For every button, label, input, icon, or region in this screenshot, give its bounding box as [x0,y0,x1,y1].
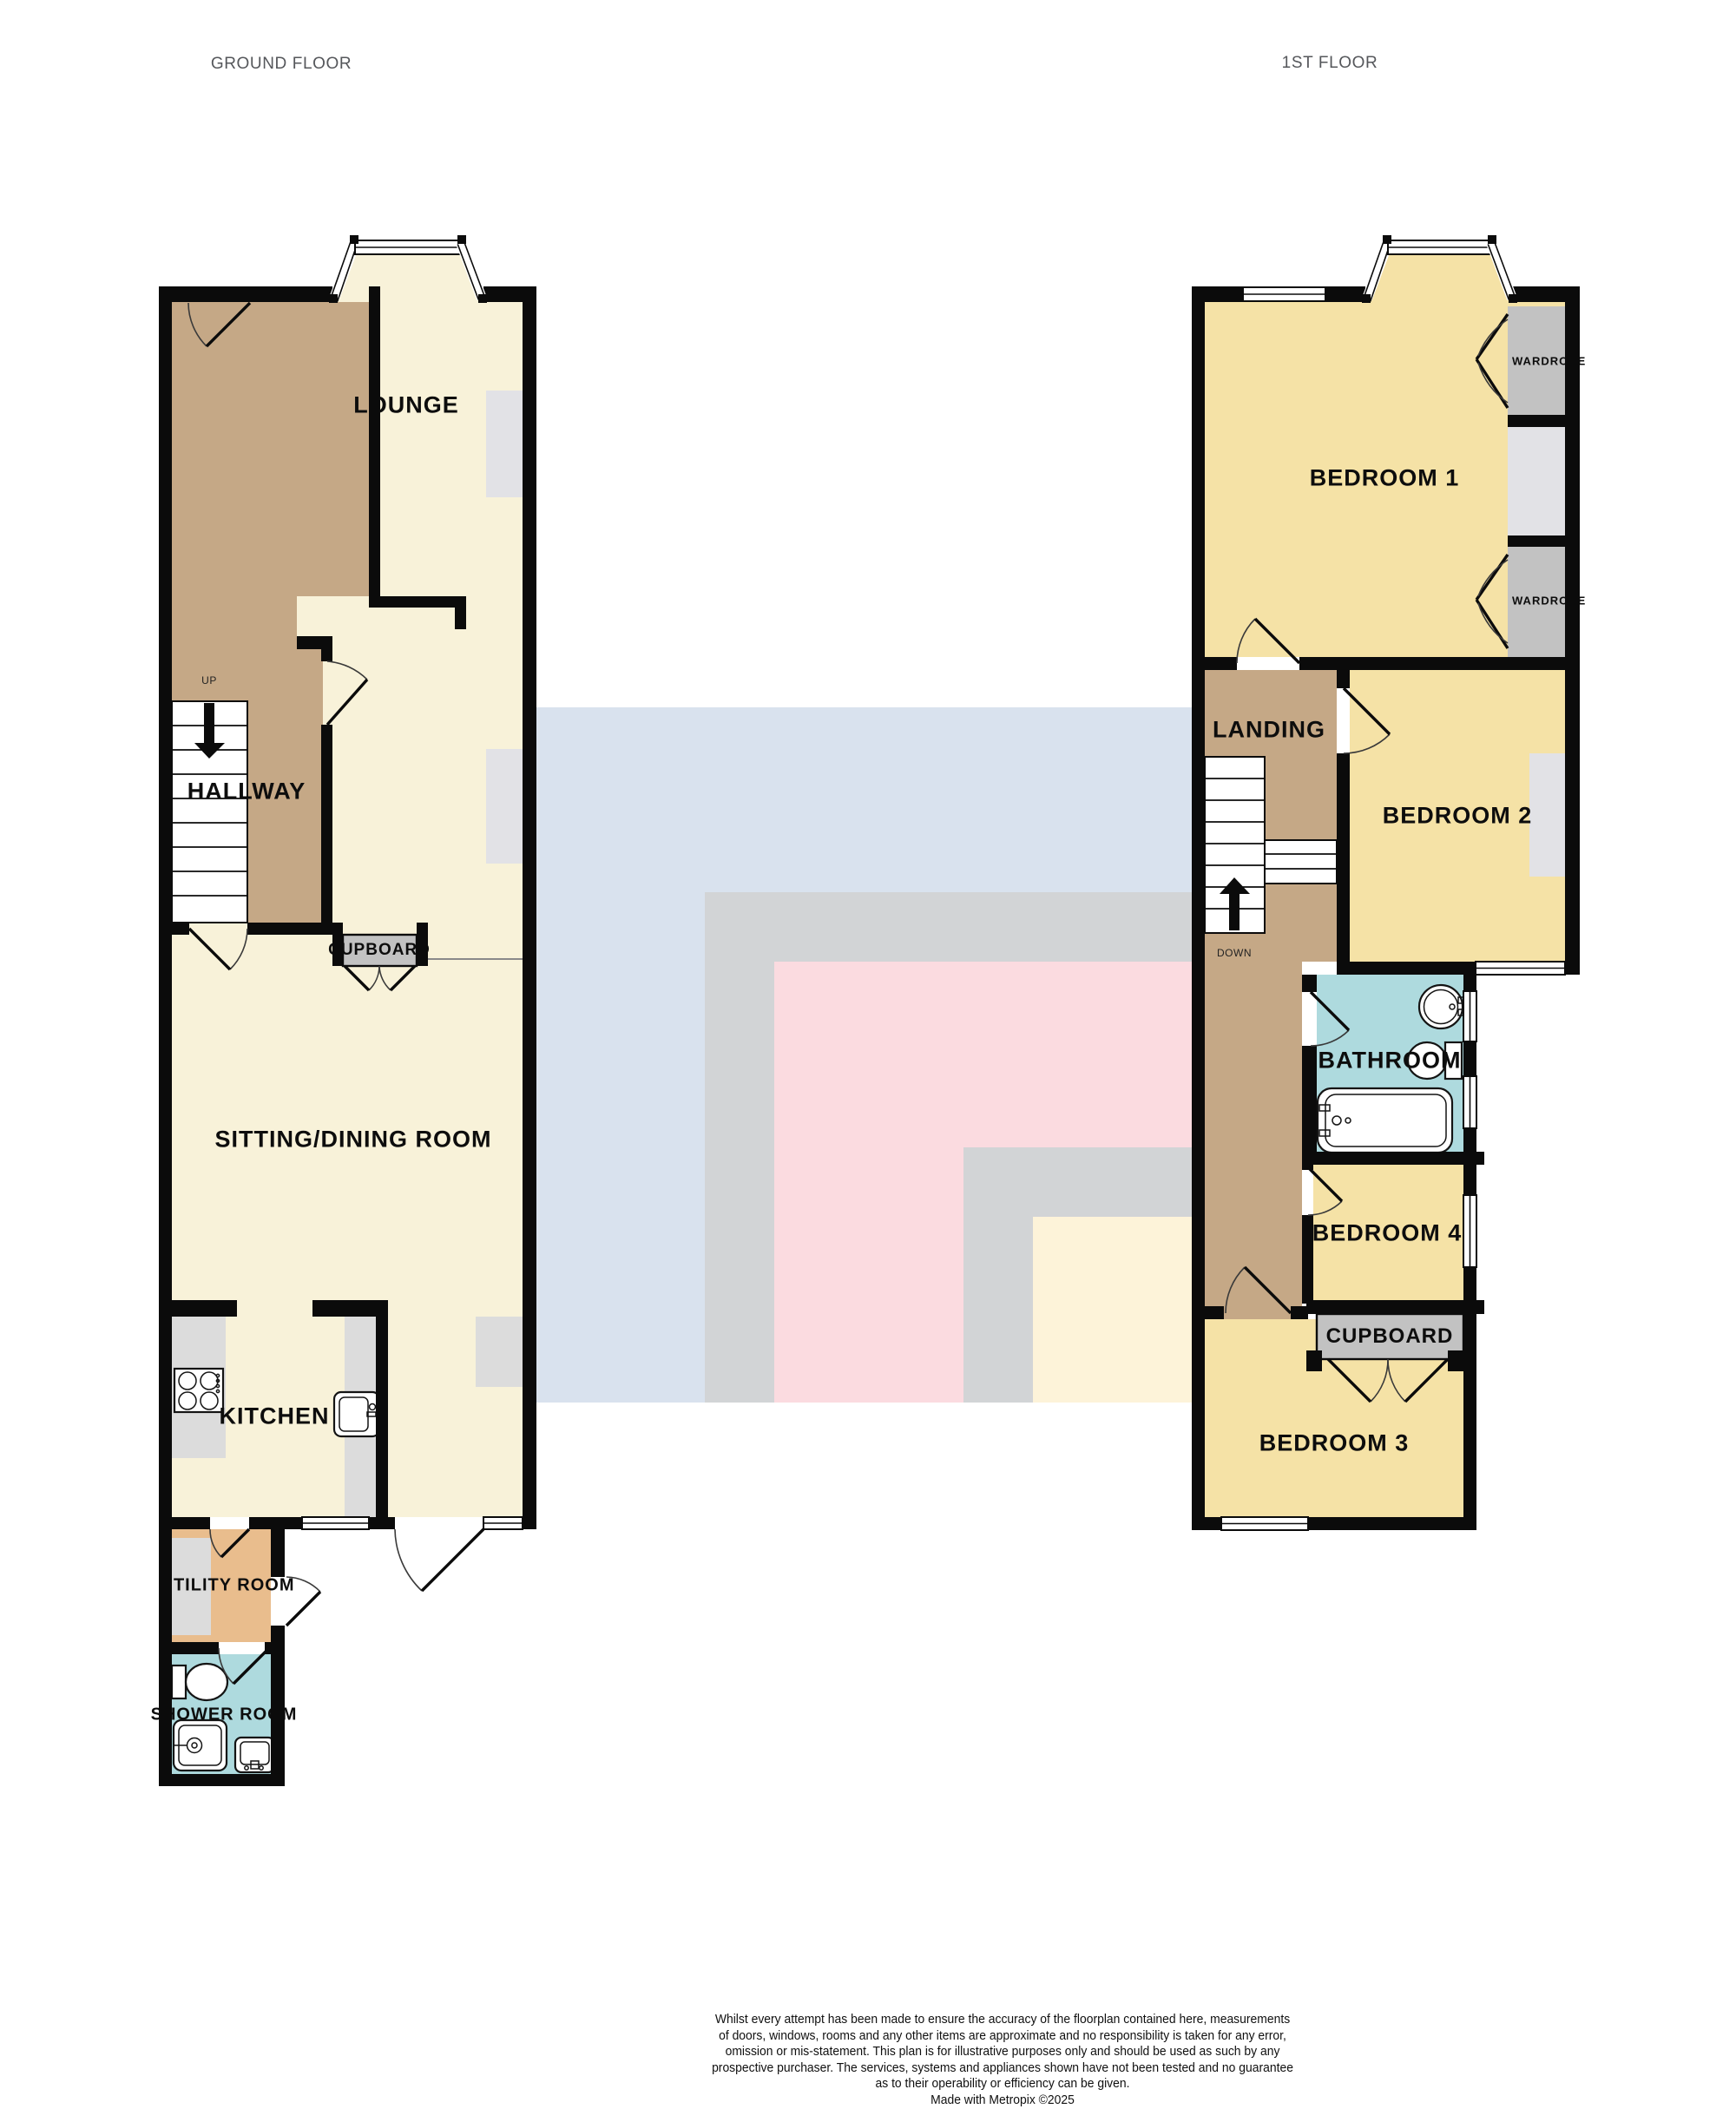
disclaimer: Whilst every attempt has been made to en… [669,2012,1336,2109]
disclaimer-line: prospective purchaser. The services, sys… [669,2060,1336,2077]
room-label-hallway: HALLWAY [187,779,306,805]
room-label-sitting-dining: SITTING/DINING ROOM [215,1127,492,1153]
room-label-first-cupboard: CUPBOARD [1326,1324,1454,1349]
floor-title-ground: GROUND FLOOR [211,55,352,74]
room-label-bedroom4: BEDROOM 4 [1312,1220,1463,1247]
room-label-kitchen: KITCHEN [220,1403,330,1430]
room-label-shower: SHOWER ROOM [151,1705,298,1725]
stairs-up-label: UP [201,674,217,687]
room-label-ground-cupboard: CUPBOARD [328,941,431,960]
room-label-bathroom: BATHROOM [1318,1048,1462,1074]
room-label-landing: LANDING [1213,717,1325,744]
floor-title-first: 1ST FLOOR [1282,54,1378,73]
room-label-bedroom2: BEDROOM 2 [1383,803,1533,830]
room-label-bedroom3: BEDROOM 3 [1259,1430,1410,1457]
room-labels: LOUNGE HALLWAY UP CUPBOARD SITTING/DININ… [0,0,1736,2109]
disclaimer-line: as to their operability or efficiency ca… [669,2076,1336,2093]
disclaimer-line: Whilst every attempt has been made to en… [669,2012,1336,2028]
label-wardrobe-1: WARDROBE [1512,355,1586,368]
room-label-lounge: LOUNGE [353,392,459,419]
made-with-credit: Made with Metropix ©2025 [669,2093,1336,2109]
disclaimer-line: of doors, windows, rooms and any other i… [669,2028,1336,2045]
room-label-utility: UTILITY ROOM [161,1576,295,1596]
stairs-down-label: DOWN [1217,947,1252,959]
disclaimer-line: omission or mis-statement. This plan is … [669,2044,1336,2060]
floorplan-page: GROUND FLOOR 1ST FLOOR [0,0,1736,2109]
label-wardrobe-2: WARDROBE [1512,595,1586,608]
room-label-bedroom1: BEDROOM 1 [1310,465,1460,492]
